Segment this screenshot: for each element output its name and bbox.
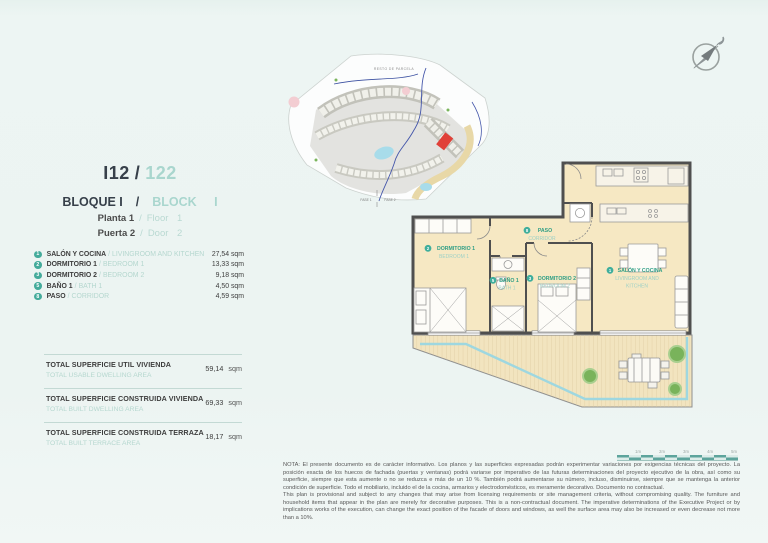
- room-row: 8 PASO / CORRIDOR 4,59 sqm: [34, 291, 244, 302]
- unit-code: I12: [103, 163, 130, 183]
- room-row: 3 DORMITORIO 2 / BEDROOM 2 9,18 sqm: [34, 270, 244, 281]
- separator: /: [140, 228, 143, 239]
- room-number-badge: 3: [34, 272, 42, 280]
- unit-header: I12/122 BLOQUE I/BLOCK I Planta 1/Floor …: [40, 163, 240, 239]
- plant: [669, 383, 681, 395]
- door-es: Puerta 2: [98, 228, 136, 239]
- floor-line: Planta 1/Floor 1: [40, 213, 240, 224]
- separator: /: [139, 213, 142, 224]
- legal-disclaimer: NOTA: El presente documento es de caráct…: [283, 462, 740, 522]
- floor-plan: 2 DORMITORIO 1 BEDROOM 1 8 PASO CORRIDOR…: [404, 158, 728, 460]
- plant: [669, 346, 685, 362]
- block-es: BLOQUE I: [62, 195, 122, 209]
- plan-label-bedroom1-en: BEDROOM 1: [439, 254, 469, 260]
- room-area: 13,33 sqm: [212, 261, 244, 268]
- total-value: 59,14: [205, 364, 223, 373]
- separator: /: [99, 261, 101, 268]
- separator: /: [99, 272, 101, 279]
- room-area: 4,59 sqm: [216, 293, 244, 300]
- room-name-en: CORRIDOR: [72, 293, 110, 300]
- disclaimer-en: This plan is provisional and subject to …: [283, 492, 740, 522]
- door-line: Puerta 2/Door 2: [40, 228, 240, 239]
- scale-label: 1m: [617, 449, 641, 454]
- scale-labels: 1m 2m 3m 4m 5m: [617, 449, 738, 454]
- room-area: 4,50 sqm: [216, 283, 244, 290]
- floor-es: Planta 1: [98, 213, 134, 224]
- scale-bar: 1m 2m 3m 4m 5m: [617, 449, 738, 461]
- room-number-badge: 5: [34, 282, 42, 290]
- room-name-en: BATH 1: [79, 283, 103, 290]
- totals-section: TOTAL SUPERFICIE UTIL VIVIENDA TOTAL USA…: [44, 354, 242, 456]
- scale-label: 4m: [689, 449, 713, 454]
- scale-track: [617, 455, 738, 461]
- sofa: [675, 276, 688, 328]
- room-number-badge: 1: [34, 251, 42, 259]
- room-row: 2 DORMITORIO 1 / BEDROOM 1 13,33 sqm: [34, 260, 244, 271]
- room-area: 9,18 sqm: [216, 272, 244, 279]
- block-en: BLOCK I: [152, 195, 217, 209]
- room-name-es: DORMITORIO 1: [47, 261, 97, 268]
- room-name-es: BAÑO 1: [47, 283, 73, 290]
- room-number-badge: 8: [34, 293, 42, 301]
- room-number-badge: 2: [34, 261, 42, 269]
- north-compass-icon: [684, 34, 730, 76]
- total-unit: sqm: [228, 432, 242, 441]
- separator: /: [108, 251, 110, 258]
- total-value: 69,33: [205, 398, 223, 407]
- pink-block-2: [402, 87, 410, 95]
- plan-label-salon-es: SALÓN Y COCINA: [618, 266, 663, 274]
- room-row: 5 BAÑO 1 / BATH 1 4,50 sqm: [34, 281, 244, 292]
- room-list: 1 SALÓN Y COCINA / LIVINGROOM AND KITCHE…: [34, 249, 244, 302]
- separator: /: [136, 195, 139, 209]
- fase1-label: FASE 1: [360, 198, 371, 202]
- room-name-en: BEDROOM 1: [103, 261, 144, 268]
- room-area: 27,54 sqm: [212, 251, 244, 258]
- floor-en: Floor 1: [147, 213, 183, 224]
- fase2-label: FASE 2: [384, 198, 395, 202]
- plan-label-bedroom1-es: DORMITORIO 1: [437, 246, 475, 252]
- plant: [583, 369, 597, 383]
- plan-label-salon-en1: LIVINGROOM AND: [615, 276, 659, 282]
- room-name-es: SALÓN Y COCINA: [47, 251, 106, 258]
- plan-label-paso-en: CORRIDOR: [528, 236, 556, 242]
- site-plan-area-label: RESTO DE PARCELA: [374, 67, 415, 71]
- plan-label-bath1-es: BAÑO 1: [499, 277, 519, 284]
- laundry-appliance: [570, 204, 590, 222]
- separator: /: [135, 163, 141, 183]
- total-built-terrace-area: TOTAL SUPERFICIE CONSTRUIDA TERRAZA TOTA…: [44, 422, 242, 456]
- total-usable-area: TOTAL SUPERFICIE UTIL VIVIENDA TOTAL USA…: [44, 354, 242, 388]
- unit-code-line: I12/122: [40, 163, 240, 184]
- separator: /: [75, 283, 77, 290]
- total-unit: sqm: [228, 398, 242, 407]
- scale-label: 3m: [665, 449, 689, 454]
- plan-label-bedroom2-es: DORMITORIO 2: [538, 276, 576, 282]
- scale-label: 5m: [713, 449, 737, 454]
- separator: /: [68, 293, 70, 300]
- room-name-en: LIVINGROOM AND KITCHEN: [112, 251, 204, 258]
- room-name-en: BEDROOM 2: [103, 272, 144, 279]
- room-name-es: PASO: [47, 293, 66, 300]
- pink-block-1: [289, 97, 300, 108]
- plan-label-bedroom2-en: BEDROOM 2: [540, 284, 570, 290]
- unit-code-alt: 122: [145, 163, 177, 183]
- total-built-dwelling-area: TOTAL SUPERFICIE CONSTRUIDA VIVIENDA TOT…: [44, 388, 242, 422]
- floorplan-sheet: RESTO DE PARCELA FASE 1 FASE 2 I12/122 B…: [0, 0, 768, 543]
- disclaimer-es: NOTA: El presente documento es de caráct…: [283, 462, 740, 492]
- total-value: 18,17: [205, 432, 223, 441]
- room-name-es: DORMITORIO 2: [47, 272, 97, 279]
- plan-label-salon-en2: KITCHEN: [626, 284, 648, 290]
- door-en: Door 2: [148, 228, 183, 239]
- plan-label-paso-es: PASO: [538, 228, 552, 234]
- room-row: 1 SALÓN Y COCINA / LIVINGROOM AND KITCHE…: [34, 249, 244, 260]
- plan-label-bath1-en: BATH 1: [498, 286, 515, 292]
- block-line: BLOQUE I/BLOCK I: [40, 195, 240, 209]
- total-unit: sqm: [228, 364, 242, 373]
- scale-label: 2m: [641, 449, 665, 454]
